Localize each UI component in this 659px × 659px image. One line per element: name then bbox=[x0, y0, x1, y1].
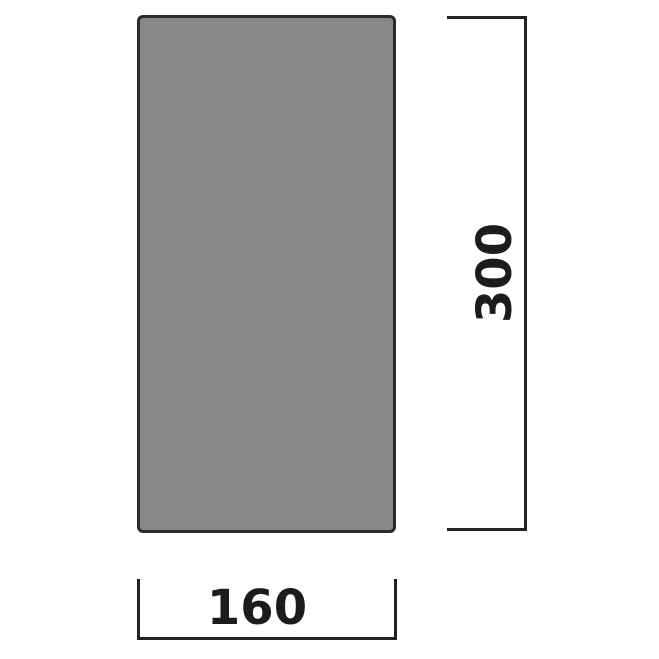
height-dimension-label: 300 bbox=[471, 223, 519, 323]
dimensioned-rectangle-panel bbox=[137, 15, 396, 533]
width-dimension-label: 160 bbox=[207, 584, 307, 632]
drawing-canvas: 300 160 bbox=[0, 0, 659, 659]
